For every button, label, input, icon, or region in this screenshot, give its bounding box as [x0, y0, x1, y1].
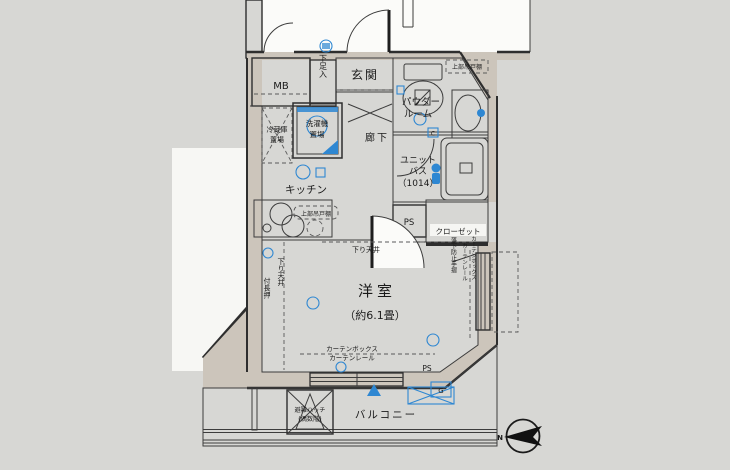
wall — [488, 96, 497, 202]
label-closet: クローゼット — [436, 226, 481, 236]
corridor-area — [262, 0, 530, 52]
label-balcony: バルコニー — [355, 409, 417, 421]
label-entrance: 玄関 — [351, 67, 379, 82]
floorplan-image: MB 下足入 玄関 上部吊戸棚 パウダー ルーム ユニット バス （1014） … — [0, 0, 730, 470]
label-ps-top: PS — [404, 218, 415, 228]
label-main-room: 洋室 — [358, 282, 396, 300]
label-shoe-box: 下足入 — [319, 54, 328, 78]
label-fridge: 冷蔵庫 — [267, 125, 288, 134]
label-unit-bath: ユニット — [400, 156, 436, 166]
label-washer-2: 置場 — [310, 129, 325, 139]
label-handrail: 落下防止手摺 — [450, 236, 457, 274]
label-curtain-rail-v: カーテンレール — [461, 243, 468, 282]
label-powder-room: パウダー — [402, 96, 440, 108]
label-dropped-ceiling-v: 下り天井 — [277, 258, 285, 287]
label-ps-bottom: PS — [422, 364, 432, 373]
label-north: N — [497, 434, 503, 442]
label-c-symbol: C — [431, 131, 435, 138]
label-fridge-2: 置場 — [270, 135, 284, 144]
label-hatch-2: (偶数階) — [298, 415, 321, 423]
label-nageshi: 付長押 — [263, 277, 271, 300]
label-unit-bath-2: バス — [409, 166, 427, 177]
label-room-size: （約6.1畳） — [344, 308, 406, 322]
label-kitchen-cabinet: 上部吊戸棚 — [301, 210, 331, 218]
closet-door — [426, 242, 488, 246]
label-mb: MB — [273, 81, 289, 92]
label-hatch: 避難ハッチ — [295, 406, 326, 414]
label-curtain-rail-h: カーテンレール — [329, 354, 375, 362]
label-curtain-box-h: カーテンボックス — [326, 345, 378, 353]
label-hallway: 廊下 — [365, 131, 389, 144]
label-powder-room-2: ルーム — [404, 109, 432, 120]
floorplan-svg: MB 下足入 玄関 上部吊戸棚 パウダー ルーム ユニット バス （1014） … — [0, 0, 730, 470]
label-unit-bath-3: （1014） — [398, 178, 439, 189]
label-g-unit: G — [438, 387, 443, 395]
label-curtain-box-v: カーテンボックス — [470, 236, 477, 281]
label-powder-cabinet: 上部吊戸棚 — [452, 63, 482, 71]
label-kitchen: キッチン — [285, 184, 327, 196]
label-washer: 洗濯機 — [306, 118, 329, 128]
label-dropped-ceiling: 下り天井 — [352, 245, 380, 254]
